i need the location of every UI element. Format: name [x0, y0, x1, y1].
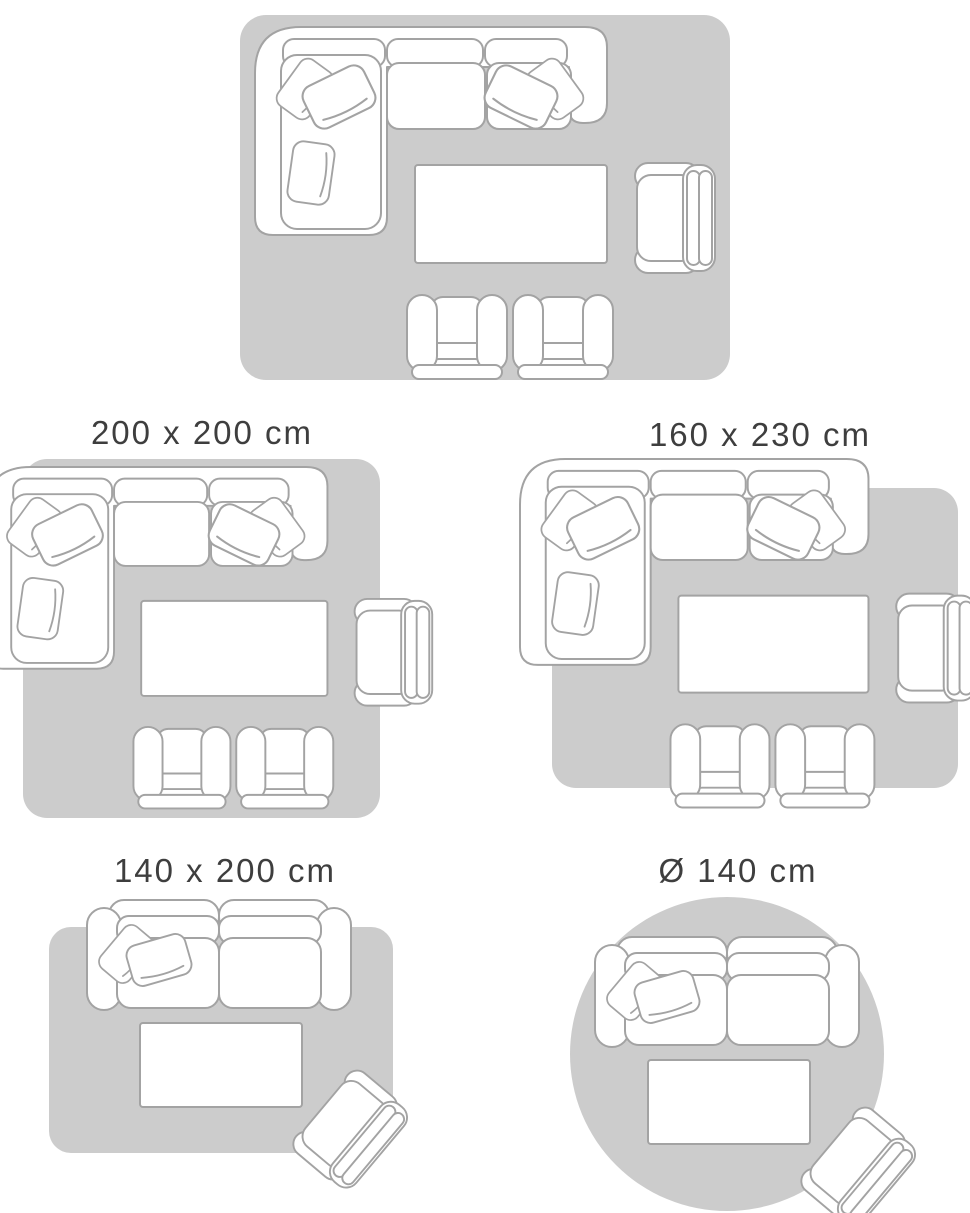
- diagram-d140: [570, 897, 922, 1213]
- diagram-200x200: [0, 459, 432, 818]
- diagram-160x230: [520, 459, 970, 807]
- rug-size-guide: 200 x 300 cm 200 x 200 cm 160 x 230 cm 1…: [0, 0, 970, 1213]
- diagram-200x300: [240, 15, 730, 380]
- room-layout-illustrations: [0, 0, 970, 1213]
- diagram-140x200: [49, 900, 414, 1194]
